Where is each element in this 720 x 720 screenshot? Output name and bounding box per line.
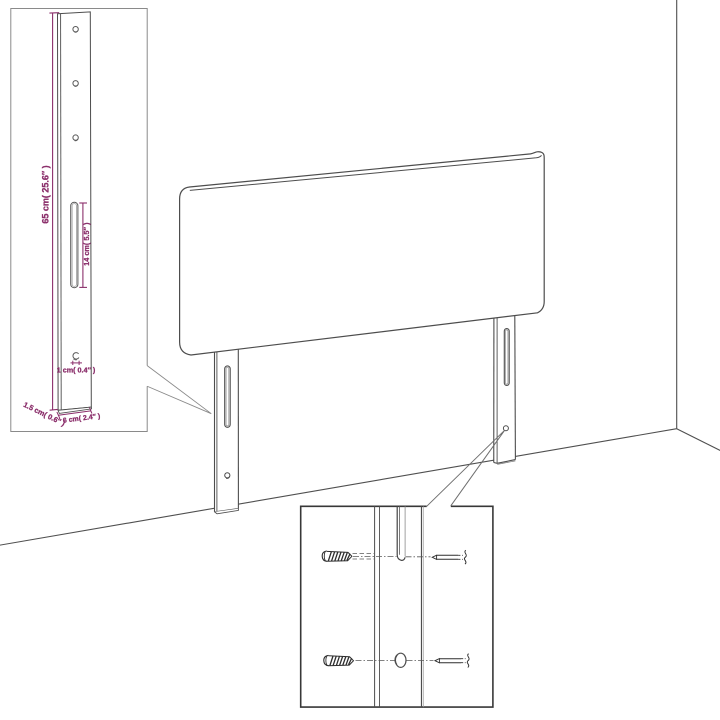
svg-text:65 cm( 25.6″ ): 65 cm( 25.6″ ) (41, 165, 51, 223)
svg-text:14 cm( 5.5″ ): 14 cm( 5.5″ ) (82, 222, 91, 266)
svg-text:1 cm( 0.4″ ): 1 cm( 0.4″ ) (57, 366, 96, 375)
